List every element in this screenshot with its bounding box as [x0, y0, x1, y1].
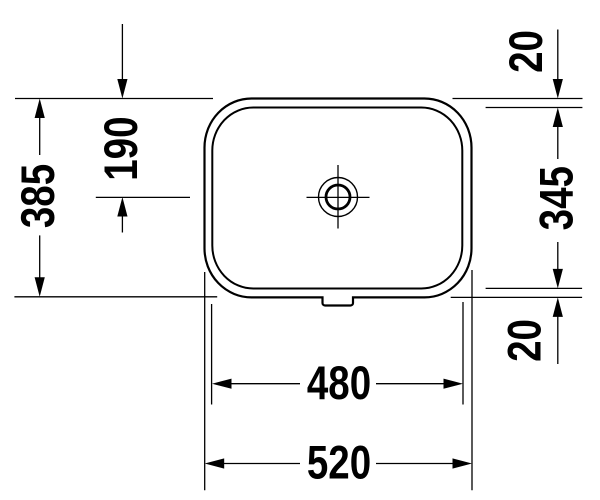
- svg-text:385: 385: [12, 164, 64, 228]
- svg-text:520: 520: [307, 437, 371, 489]
- svg-text:345: 345: [531, 166, 583, 230]
- svg-text:20: 20: [499, 319, 551, 362]
- svg-text:20: 20: [500, 30, 552, 73]
- svg-text:190: 190: [95, 116, 147, 180]
- svg-text:480: 480: [307, 357, 371, 409]
